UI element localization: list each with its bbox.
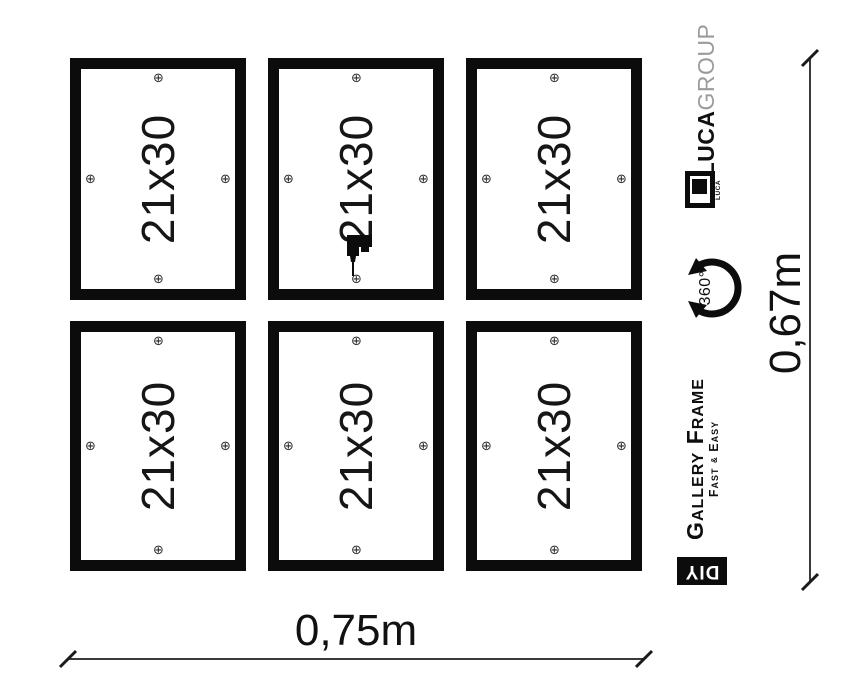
screw-icon: ⊕	[152, 273, 165, 286]
subtitle-fast: Fast	[707, 467, 721, 497]
logo-caption: LUCA	[715, 171, 723, 209]
frame-size-label: 21x30	[242, 369, 470, 523]
height-dimension-label: 0,67m	[764, 243, 808, 383]
picture-frame: ⊕ ⊕ ⊕ ⊕ 21x30	[466, 58, 642, 300]
frame-size-label: 21x30	[440, 369, 668, 523]
picture-frame: ⊕ ⊕ ⊕ ⊕ 21x30	[466, 321, 642, 571]
subtitle-ampersand: &	[710, 456, 719, 463]
frame-size-label: 21x30	[246, 102, 466, 256]
screw-icon: ⊕	[350, 72, 363, 85]
frame-size-label: 21x30	[44, 369, 272, 523]
picture-frame: ⊕ ⊕ ⊕ ⊕ 21x30	[70, 58, 246, 300]
width-dimension-label: 0,75m	[276, 608, 436, 654]
subtitle-easy: Easy	[707, 421, 721, 452]
screw-icon: ⊕	[548, 544, 561, 557]
screw-icon: ⊕	[548, 335, 561, 348]
drill-icon	[341, 235, 375, 283]
product-subtitle: Fast & Easy	[707, 359, 722, 559]
brand-primary: LUCA	[693, 110, 720, 176]
screw-icon: ⊕	[548, 273, 561, 286]
rotation-360-badge: 360°	[676, 252, 748, 324]
frame-size-label: 21x30	[48, 102, 268, 256]
rotation-badge-label: 360°	[697, 266, 715, 310]
picture-frame: ⊕ ⊕ ⊕ ⊕ 21x30	[70, 321, 246, 571]
product-name-block: Gallery Frame Fast & Easy	[683, 359, 725, 559]
brand-wordmark: LUCAGROUP	[693, 15, 719, 185]
screw-icon: ⊕	[152, 72, 165, 85]
picture-frame: ⊕ ⊕ ⊕ ⊕ 21x30	[268, 321, 444, 571]
picture-frame: ⊕ ⊕ ⊕ ⊕ 21x30	[268, 58, 444, 300]
luca-logo	[685, 171, 715, 208]
screw-icon: ⊕	[152, 544, 165, 557]
gallery-frame-layout-diagram: ⊕ ⊕ ⊕ ⊕ 21x30 ⊕ ⊕ ⊕ ⊕ 21x30 ⊕ ⊕ ⊕ ⊕ 21x3…	[0, 0, 856, 697]
diy-badge: DIY	[677, 557, 727, 585]
screw-icon: ⊕	[350, 335, 363, 348]
screw-icon: ⊕	[152, 335, 165, 348]
diy-label: DIY	[685, 560, 720, 582]
logo-square	[692, 179, 707, 194]
product-title: Gallery Frame	[683, 359, 707, 559]
screw-icon: ⊕	[548, 72, 561, 85]
brand-secondary: GROUP	[693, 24, 720, 111]
screw-icon: ⊕	[350, 544, 363, 557]
frame-size-label: 21x30	[444, 102, 664, 256]
